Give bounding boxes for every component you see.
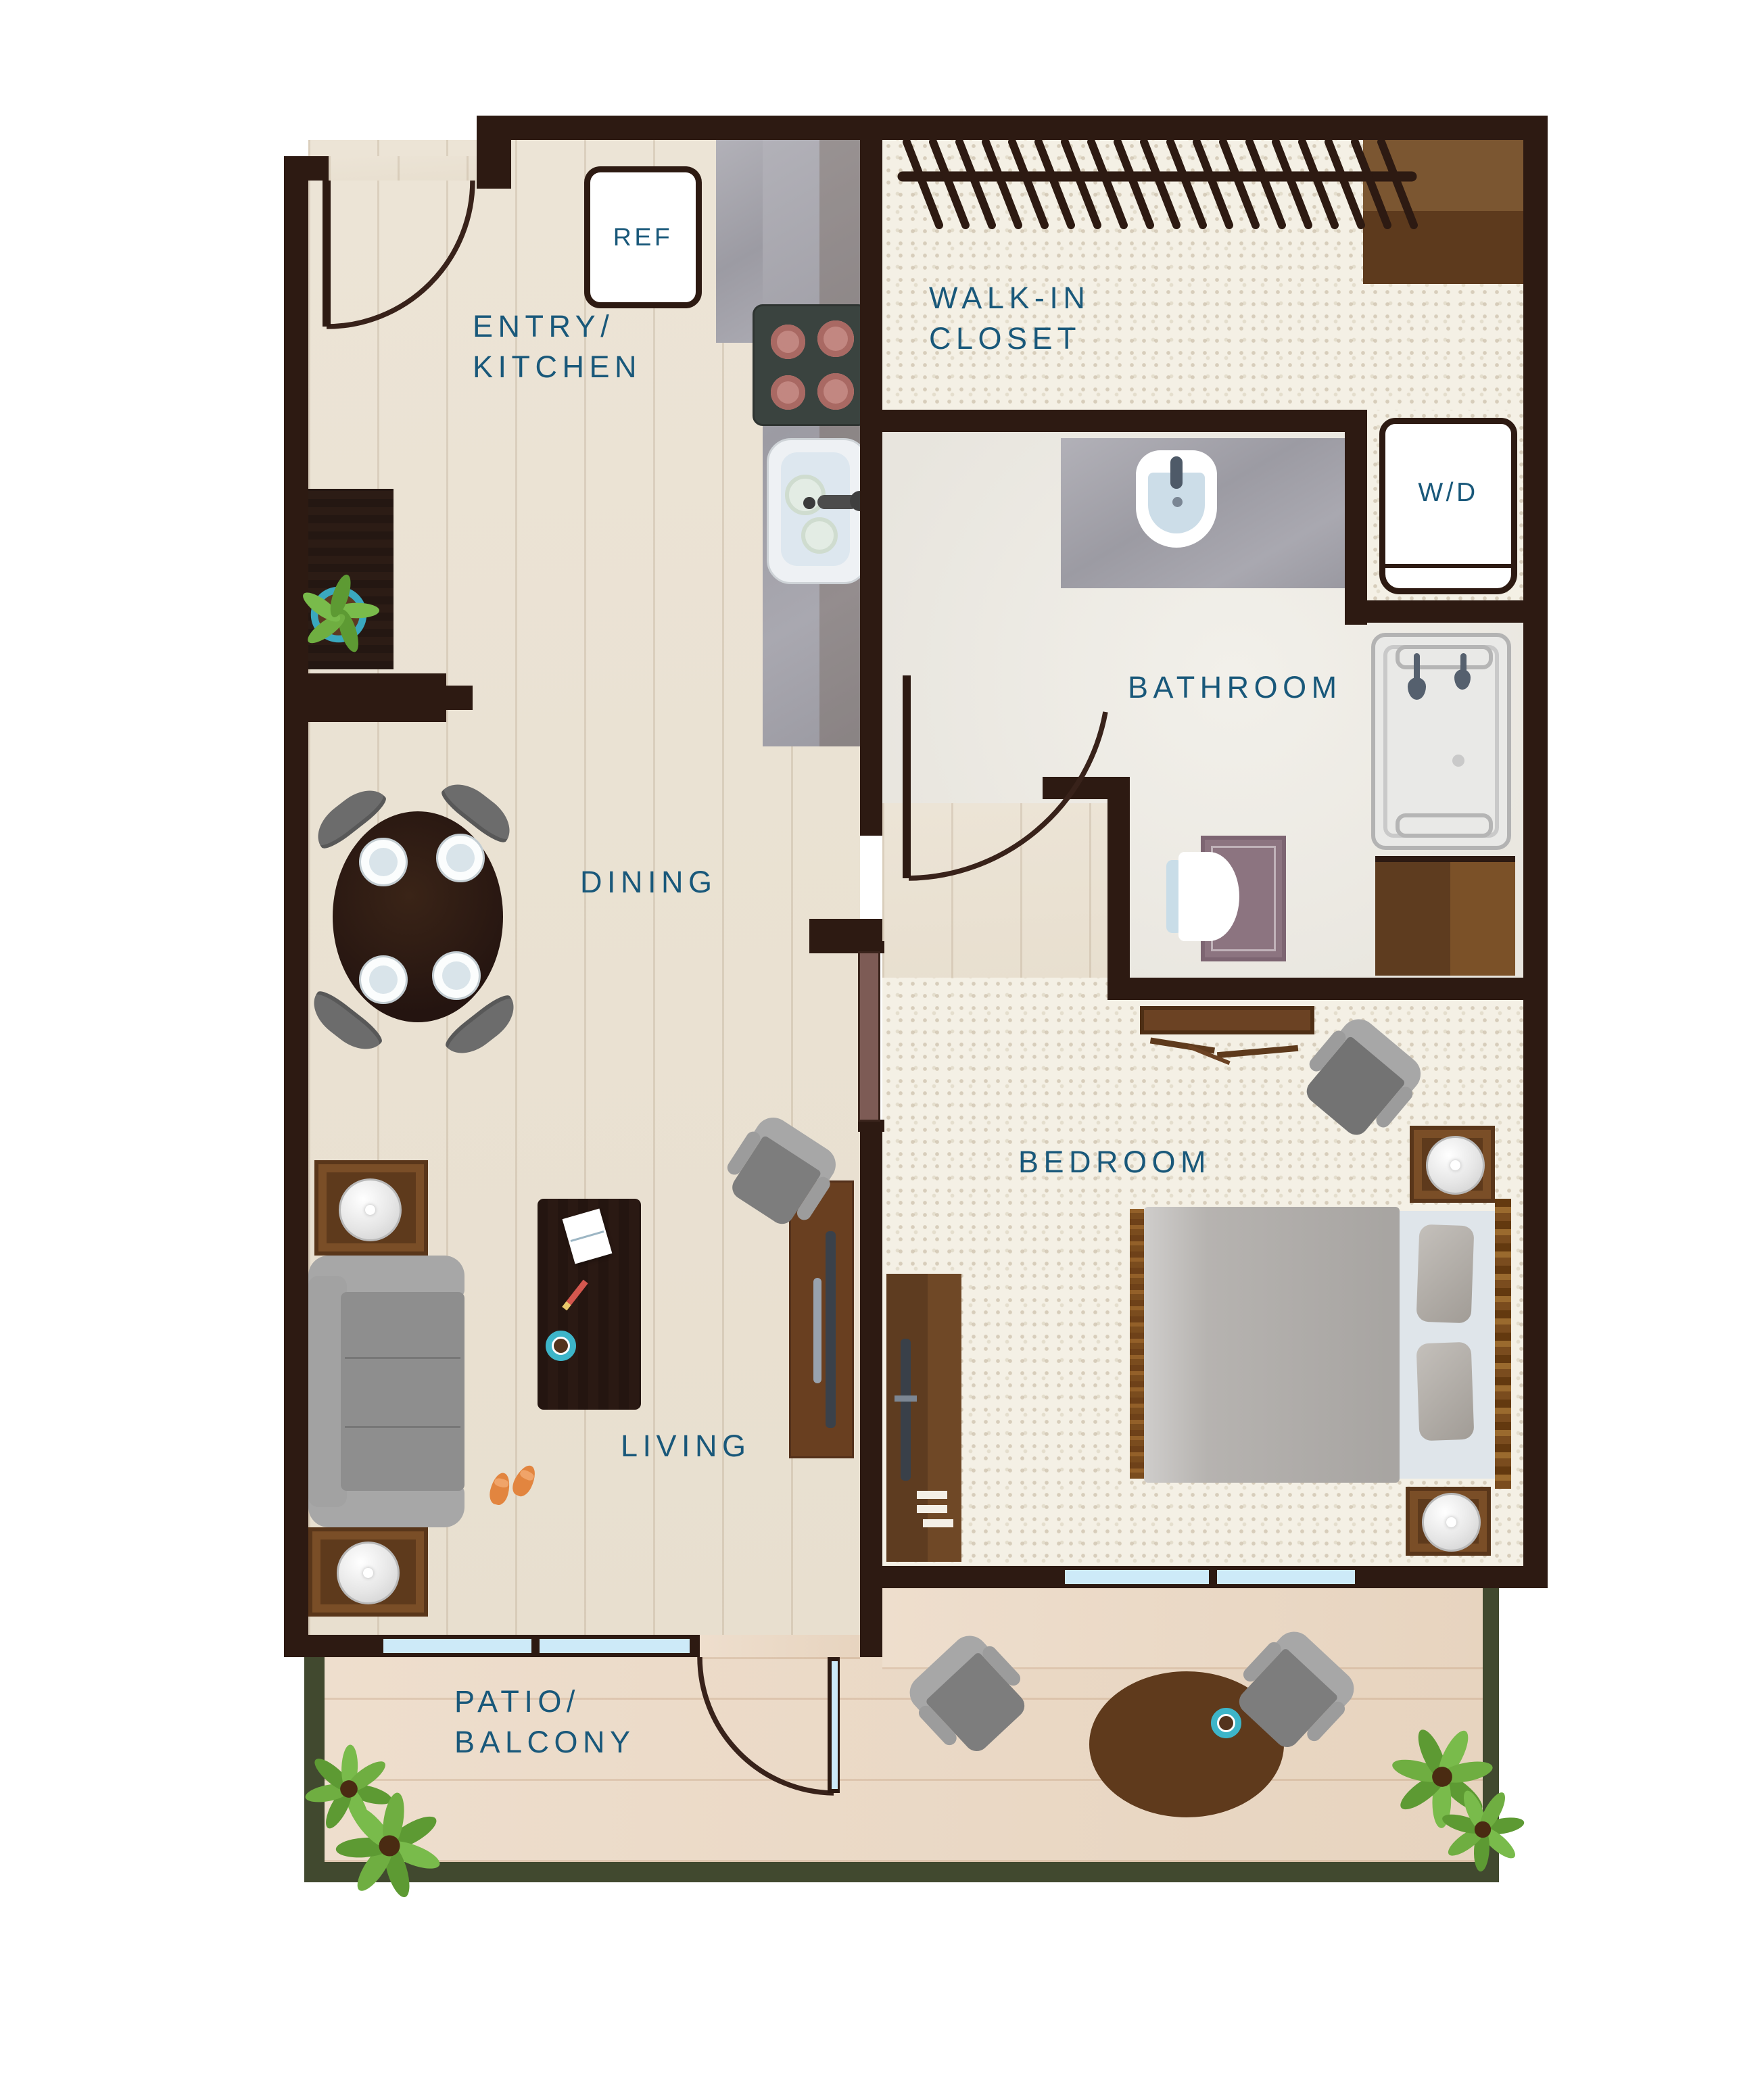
refrigerator-label: REF [613,223,673,252]
label-line: WALK-IN [929,280,1090,320]
lamp-finial [1446,1517,1456,1527]
floor-hall-vestibule [882,803,1107,978]
label-line: BATHROOM [1128,669,1342,709]
room-label-living: LIVING [621,1428,751,1468]
room-label-dining: DINING [580,864,717,904]
wall-niche-left [1345,410,1367,625]
coffee-cup [1211,1708,1241,1738]
room-label-walk-in-closet: WALK-IN CLOSET [929,280,1090,360]
lamp [339,1178,402,1241]
faucet-dot [803,497,815,509]
label-line: CLOSET [929,320,1090,360]
vanity-sink [1136,450,1217,548]
lamp-finial [365,1205,375,1215]
label-line: LIVING [621,1428,751,1468]
window-living-1 [383,1635,531,1657]
paper-fold-line [571,1231,604,1242]
window-living-2 [540,1635,690,1657]
pillow [1416,1224,1475,1324]
sofa-seam [345,1357,460,1359]
bathroom-door-leaf [903,675,911,878]
label-line: BEDROOM [1018,1144,1211,1184]
pillow [1416,1342,1475,1441]
patio-border-right [1483,1588,1499,1882]
stove [753,304,868,426]
closet-cabinet-lower [1363,211,1523,284]
patio-door-glass [831,1661,837,1789]
sofa-seat [341,1292,464,1491]
drain-dot [1452,755,1464,767]
washer-dryer-label: W/D [1418,477,1478,507]
floor-patio-door-threshold [700,1635,860,1659]
faucet-dot [1172,497,1183,507]
wall-closet-bottom [860,410,1345,432]
patio-border-left [304,1657,325,1882]
entry-door-leaf [323,181,331,327]
burner-icon [771,375,805,410]
wall-bath-stub-v [1107,777,1130,978]
bathroom-cabinet [1375,856,1515,976]
kitchen-sink-drain [801,517,838,554]
wall-entry-post [477,116,511,189]
soundbar [813,1278,821,1383]
room-label-entry-kitchen: ENTRY/ KITCHEN [473,308,642,389]
tub-inner [1383,645,1499,838]
coffee [554,1339,568,1353]
bedroom-shelf [1140,1006,1314,1034]
burner-icon [817,320,854,357]
kitchen-sink-drain [785,475,826,515]
book-stack [923,1519,953,1527]
slipper-band [519,1469,535,1482]
room-label-bedroom: BEDROOM [1018,1144,1211,1184]
washer-dryer-door-line [1385,563,1511,569]
shower-tub [1371,633,1511,850]
burner-icon [771,325,805,359]
washer-dryer: W/D [1379,418,1517,594]
grab-bar [1396,645,1493,669]
sofa-seam [345,1426,460,1428]
plate [359,955,408,1004]
lamp [1422,1493,1481,1552]
window-bedroom-2 [1217,1566,1355,1588]
wall-divider-lower [860,1132,882,1566]
wall-left [284,156,308,1657]
label-line: DINING [580,864,717,904]
plate [432,951,481,1000]
book-stack [917,1491,947,1499]
plate [436,834,485,882]
bed-footboard [1130,1209,1144,1479]
wall-bedroom-top [1107,978,1548,1000]
patio-border-bottom [304,1862,1499,1882]
lamp [337,1542,400,1604]
wall-top-main [511,116,1548,140]
label-line: BALCONY [454,1723,636,1763]
refrigerator: REF [584,166,702,308]
room-label-patio-balcony: PATIO/ BALCONY [454,1684,636,1764]
lamp-finial [363,1568,373,1578]
closet-cabinet [1363,140,1523,284]
lamp-finial [1450,1160,1460,1170]
label-line: ENTRY/ [473,308,642,348]
book-stack [917,1505,947,1513]
wall-dining-stub-notch [446,686,473,710]
wall-dining-stub [284,673,446,722]
room-label-bathroom: BATHROOM [1128,669,1342,709]
coffee [1219,1716,1233,1730]
grab-bar [1396,813,1493,838]
bathroom-cabinet-right [1450,862,1515,976]
sofa [308,1256,464,1527]
tv-stand-bar [895,1395,917,1402]
label-line: PATIO/ [454,1684,636,1723]
wall-kitchen-stub [809,919,882,953]
kitchen-sink [767,438,868,584]
tv-screen [901,1339,911,1481]
faucet-icon [1170,456,1183,489]
tv-screen [826,1231,836,1428]
coffee-cup [546,1331,576,1361]
floor-plan: REF W/D [0,0,1764,2077]
lamp [1426,1136,1485,1195]
wall-divider-upper [860,140,882,836]
wall-bath-stub-h [1043,777,1107,799]
entry-console [308,489,394,669]
bedroom-dresser [886,1274,961,1562]
floor-entry-threshold [329,156,477,181]
wall-niche-bottom [1345,600,1548,623]
bedroom-pocket-door [860,953,878,1120]
window-bedroom-1 [1065,1566,1209,1588]
bed-blanket [1144,1207,1400,1483]
slipper-band [494,1477,509,1489]
wall-bottom-step [860,1566,882,1657]
bed-headboard [1495,1199,1511,1489]
label-line: KITCHEN [473,348,642,388]
pocket-door-frame-bottom [858,1120,884,1132]
plate [359,838,408,886]
wall-right [1523,116,1548,1588]
burner-icon [817,373,854,410]
toilet-bowl [1178,852,1239,941]
